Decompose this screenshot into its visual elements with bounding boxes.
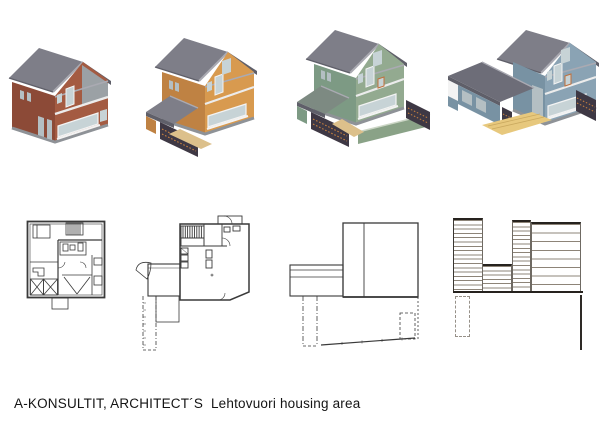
deck-area-left xyxy=(453,218,483,292)
caption-text: A-KONSULTIT, ARCHITECT´S Lehtovuori hous… xyxy=(14,396,360,411)
deck-area-notch-fill xyxy=(483,264,512,292)
plan3-linework xyxy=(290,223,418,346)
floor-plan-2 xyxy=(132,210,254,356)
floor-plan-3 xyxy=(287,209,421,351)
presentation-sheet: A-KONSULTIT, ARCHITECT´S Lehtovuori hous… xyxy=(0,0,600,422)
house-rendering-3 xyxy=(294,16,436,166)
dashed-ramp-outline xyxy=(455,296,470,337)
house-rendering-4 xyxy=(448,14,600,159)
house-rendering-1 xyxy=(8,40,112,150)
plan1-linework xyxy=(28,222,105,310)
plan2-linework xyxy=(136,216,249,350)
deck-area-right xyxy=(531,222,581,292)
floor-plan-1 xyxy=(24,216,106,312)
floor-plan-4 xyxy=(451,215,587,355)
house-rendering-2 xyxy=(142,20,260,170)
deck-area-middle xyxy=(512,220,531,292)
right-boundary-line xyxy=(580,295,582,350)
deck-bottom-edge xyxy=(453,291,583,293)
